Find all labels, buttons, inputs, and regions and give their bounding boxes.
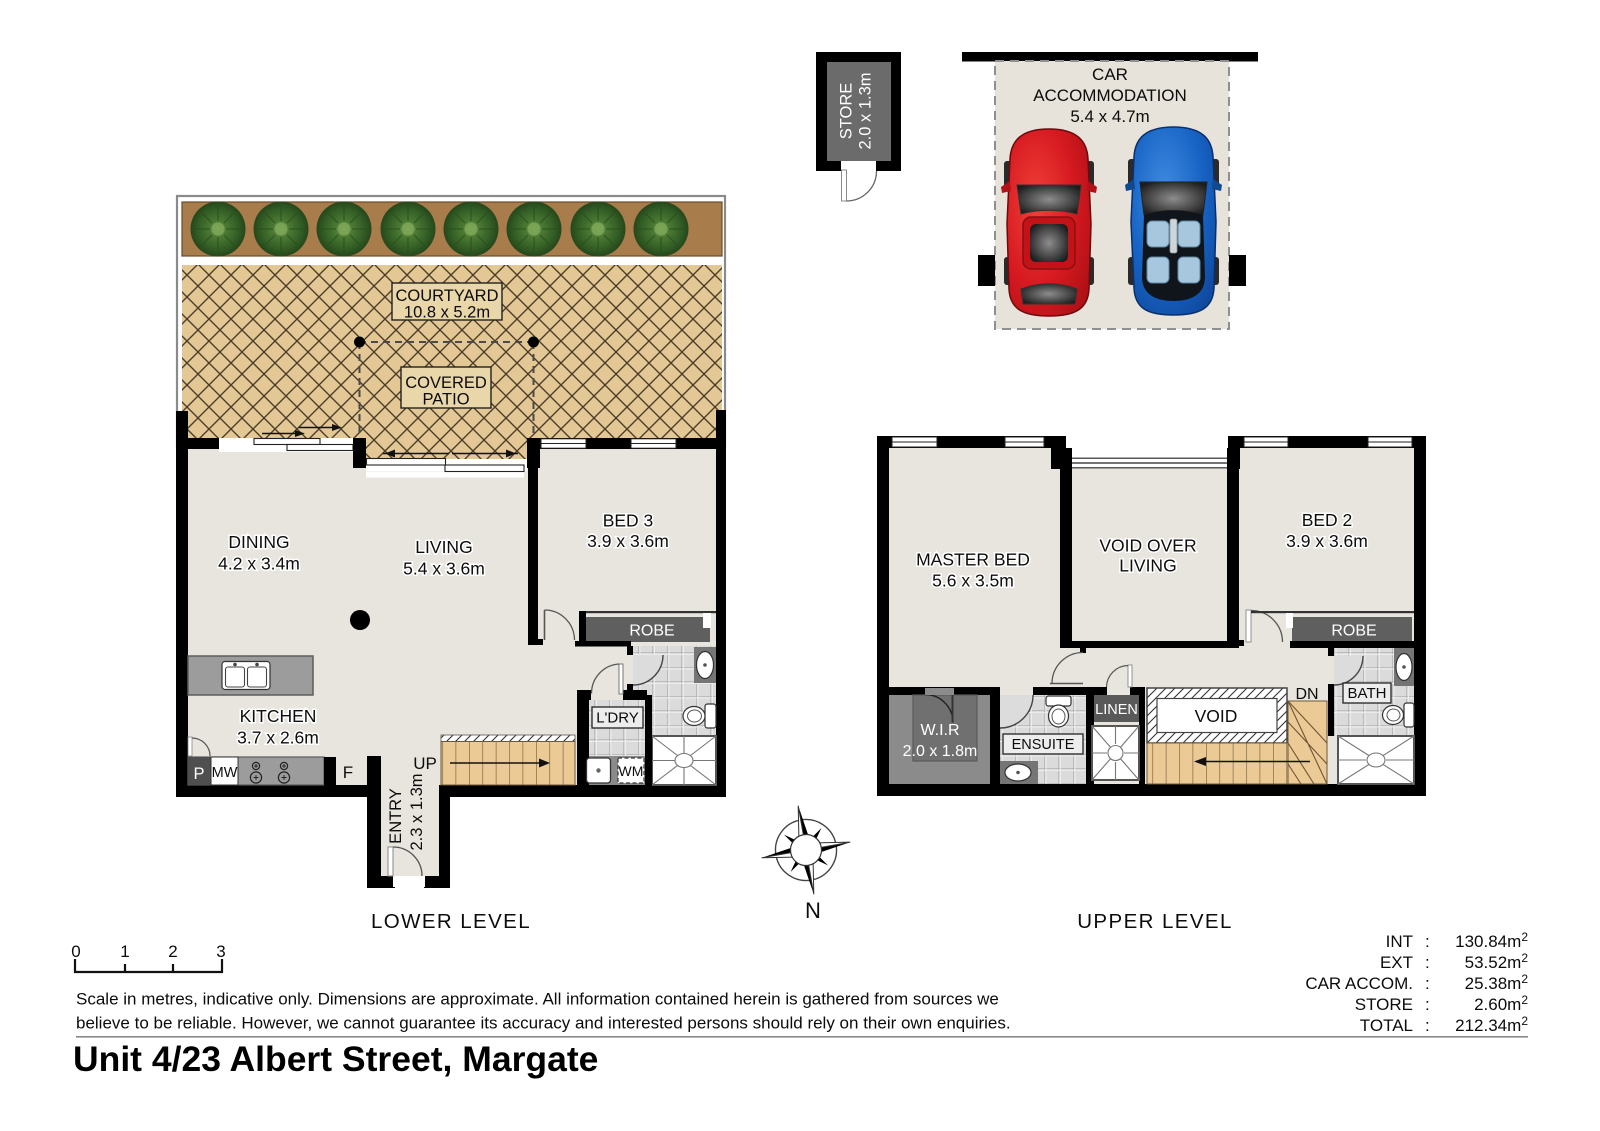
svg-text:UPPER LEVEL: UPPER LEVEL [1077, 910, 1233, 933]
svg-text:COURTYARD: COURTYARD [396, 287, 499, 305]
svg-text:5.4 x 4.7m: 5.4 x 4.7m [1070, 107, 1149, 126]
svg-text:ENSUITE: ENSUITE [1012, 737, 1075, 753]
svg-text:0: 0 [71, 942, 80, 961]
svg-text:MASTER BED: MASTER BED [916, 550, 1030, 570]
svg-text:L'DRY: L'DRY [596, 710, 639, 727]
svg-text:LINEN: LINEN [1095, 702, 1138, 718]
svg-text:3.9 x 3.6m: 3.9 x 3.6m [1286, 531, 1368, 551]
svg-text:ACCOMMODATION: ACCOMMODATION [1033, 86, 1187, 105]
svg-text:CAR: CAR [1092, 65, 1128, 84]
svg-text:W.I.R: W.I.R [920, 722, 959, 739]
svg-text:KITCHEN: KITCHEN [240, 706, 317, 726]
svg-text:4.2 x 3.4m: 4.2 x 3.4m [218, 554, 300, 574]
svg-text:LIVING: LIVING [1119, 556, 1176, 576]
svg-text:P: P [193, 765, 204, 783]
svg-text:130.84m2: 130.84m2 [1455, 930, 1528, 951]
svg-text:PATIO: PATIO [422, 391, 469, 409]
svg-text:10.8 x 5.2m: 10.8 x 5.2m [404, 304, 490, 322]
svg-text:2.3 x 1.3m: 2.3 x 1.3m [408, 773, 426, 850]
svg-text:N: N [805, 898, 821, 923]
svg-text:3: 3 [216, 942, 225, 961]
svg-text:believe to be reliable. Howeve: believe to be reliable. However, we cann… [76, 1014, 1011, 1033]
svg-text:3.7 x 2.6m: 3.7 x 2.6m [237, 728, 319, 748]
svg-text:MW: MW [212, 765, 238, 781]
svg-text:UP: UP [413, 754, 437, 773]
svg-text:VOID OVER: VOID OVER [1099, 536, 1196, 556]
svg-text:STORE: STORE [838, 83, 856, 140]
svg-text:CAR ACCOM.: CAR ACCOM. [1305, 974, 1413, 993]
svg-text:COVERED: COVERED [405, 374, 487, 392]
svg-text:Unit 4/23 Albert Street, Marga: Unit 4/23 Albert Street, Margate [73, 1039, 598, 1079]
svg-text:INT: INT [1386, 932, 1413, 951]
svg-text:2.0 x 1.3m: 2.0 x 1.3m [857, 72, 875, 149]
svg-text::: : [1425, 1016, 1430, 1035]
svg-text:VOID: VOID [1195, 706, 1238, 726]
svg-text:LIVING: LIVING [415, 537, 472, 557]
svg-text:WM: WM [619, 763, 644, 779]
svg-text:STORE: STORE [1355, 995, 1413, 1014]
svg-text:DINING: DINING [228, 532, 289, 552]
svg-text:BED 2: BED 2 [1302, 510, 1353, 530]
svg-text:2.60m2: 2.60m2 [1474, 993, 1528, 1014]
svg-text:TOTAL: TOTAL [1360, 1016, 1413, 1035]
svg-text:Scale in metres, indicative on: Scale in metres, indicative only. Dimens… [76, 990, 999, 1009]
svg-text:DN: DN [1295, 686, 1318, 703]
svg-text:ROBE: ROBE [1331, 623, 1376, 640]
svg-text:EXT: EXT [1380, 953, 1413, 972]
svg-text:2.0 x 1.8m: 2.0 x 1.8m [903, 743, 978, 760]
svg-text::: : [1425, 932, 1430, 951]
svg-text:5.6 x 3.5m: 5.6 x 3.5m [932, 571, 1014, 591]
svg-text:53.52m2: 53.52m2 [1465, 951, 1529, 972]
svg-text:ROBE: ROBE [629, 623, 674, 640]
svg-text:2: 2 [168, 942, 177, 961]
svg-text:BATH: BATH [1348, 685, 1387, 702]
svg-text:LOWER LEVEL: LOWER LEVEL [371, 910, 531, 933]
svg-text::: : [1425, 995, 1430, 1014]
svg-text:ENTRY: ENTRY [387, 788, 405, 844]
svg-text::: : [1425, 974, 1430, 993]
svg-text::: : [1425, 953, 1430, 972]
svg-text:212.34m2: 212.34m2 [1455, 1014, 1528, 1035]
svg-text:1: 1 [120, 942, 129, 961]
svg-text:25.38m2: 25.38m2 [1465, 972, 1529, 993]
svg-text:BED 3: BED 3 [603, 511, 654, 531]
svg-text:3.9 x 3.6m: 3.9 x 3.6m [587, 531, 669, 551]
svg-text:5.4 x 3.6m: 5.4 x 3.6m [403, 559, 485, 579]
svg-text:F: F [343, 763, 353, 782]
